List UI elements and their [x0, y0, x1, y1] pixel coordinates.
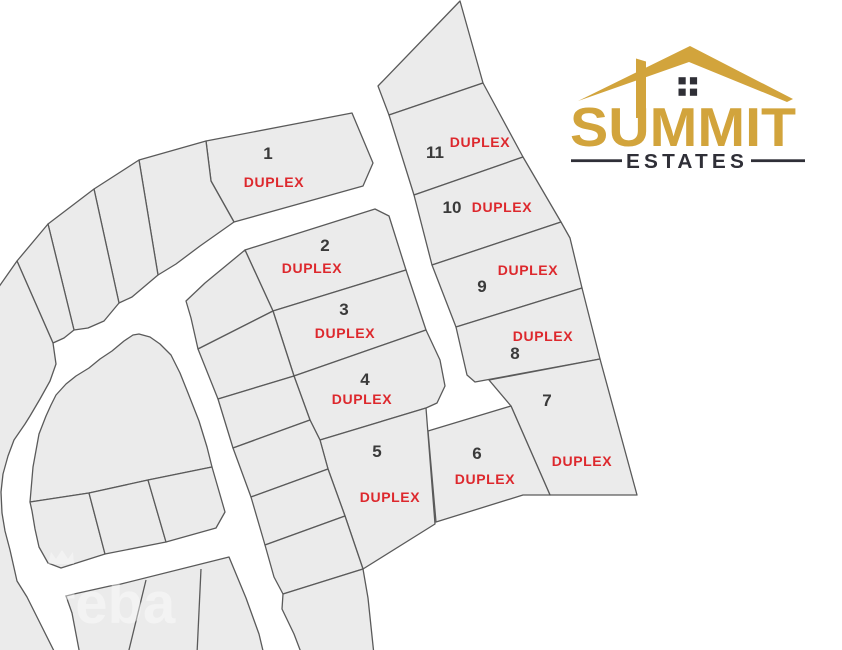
svg-text:8: 8 — [510, 344, 519, 363]
svg-text:3: 3 — [339, 300, 348, 319]
svg-text:7: 7 — [542, 391, 551, 410]
svg-text:4: 4 — [360, 370, 370, 389]
svg-text:DUPLEX: DUPLEX — [244, 174, 304, 190]
svg-text:SUMMIT: SUMMIT — [570, 96, 796, 158]
svg-text:DUPLEX: DUPLEX — [552, 453, 612, 469]
svg-text:DUPLEX: DUPLEX — [513, 328, 573, 344]
svg-text:DUPLEX: DUPLEX — [315, 325, 375, 341]
svg-text:ESTATES: ESTATES — [626, 151, 748, 173]
svg-text:DUPLEX: DUPLEX — [472, 199, 532, 215]
svg-text:9: 9 — [477, 277, 486, 296]
svg-text:DUPLEX: DUPLEX — [450, 134, 510, 150]
svg-text:1: 1 — [263, 144, 272, 163]
svg-text:6: 6 — [472, 444, 481, 463]
svg-text:10: 10 — [443, 198, 462, 217]
svg-text:DUPLEX: DUPLEX — [498, 262, 558, 278]
svg-text:2: 2 — [320, 236, 329, 255]
svg-text:11: 11 — [426, 143, 444, 162]
svg-text:DUPLEX: DUPLEX — [360, 489, 420, 505]
svg-text:5: 5 — [372, 442, 381, 461]
svg-text:DUPLEX: DUPLEX — [332, 391, 392, 407]
svg-text:DUPLEX: DUPLEX — [282, 260, 342, 276]
svg-text:reba: reba — [53, 571, 176, 636]
svg-text:DUPLEX: DUPLEX — [455, 471, 515, 487]
